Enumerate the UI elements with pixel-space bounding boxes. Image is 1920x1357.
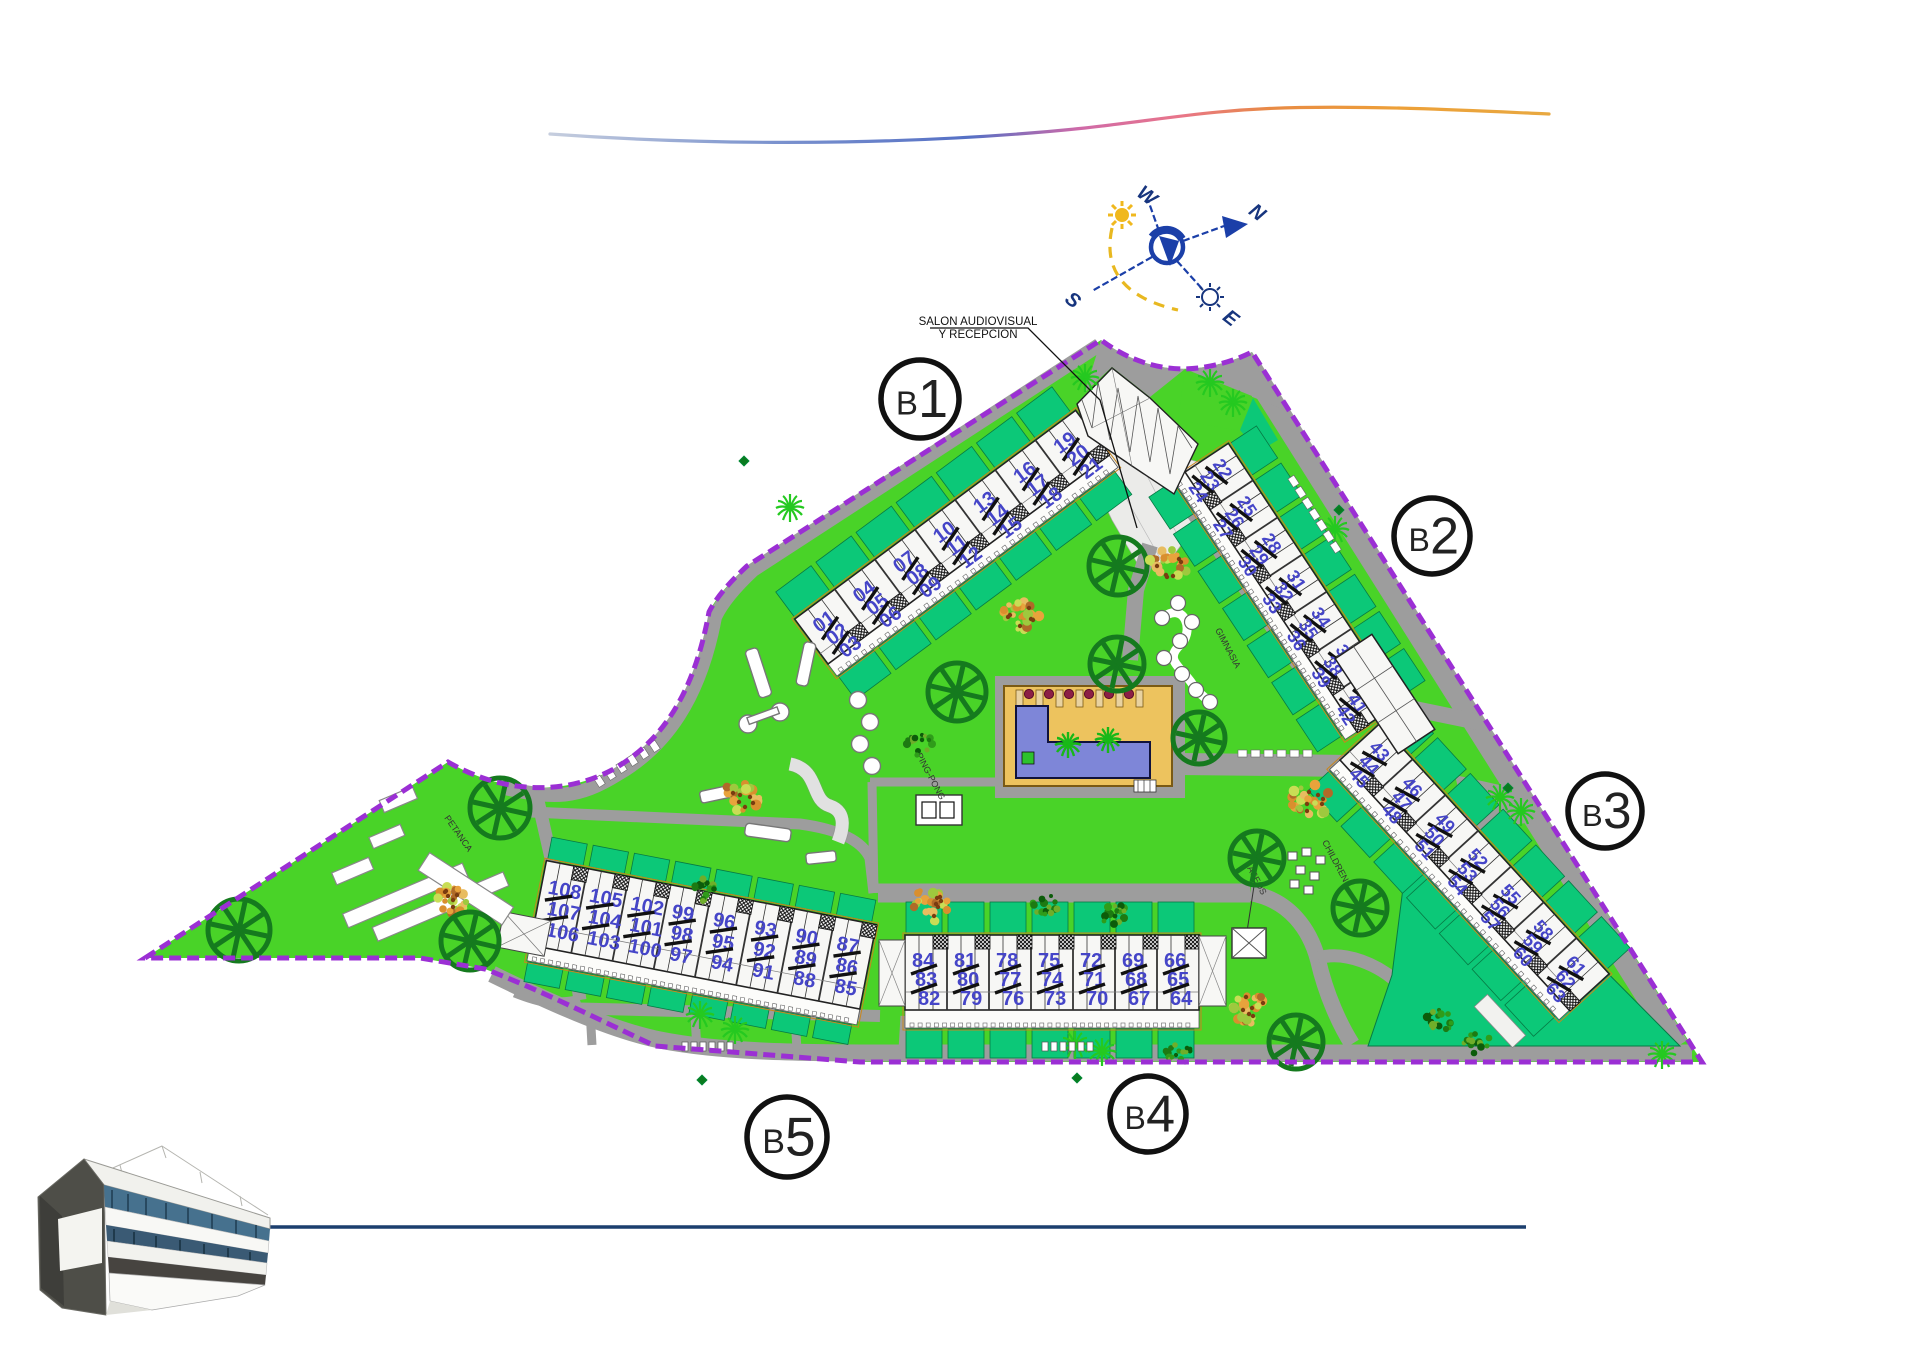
svg-text:3: 3 [1603,782,1631,839]
svg-text:97: 97 [668,943,694,969]
svg-text:B: B [762,1123,785,1161]
svg-text:91: 91 [750,959,776,985]
svg-text:67: 67 [1128,988,1150,1010]
svg-text:B: B [1408,522,1429,558]
svg-text:70: 70 [1086,988,1108,1010]
svg-text:1: 1 [918,369,948,429]
svg-text:82: 82 [918,988,940,1010]
svg-text:B: B [1124,1100,1145,1136]
svg-text:64: 64 [1170,988,1193,1010]
svg-text:SALON AUDIOVISUAL: SALON AUDIOVISUAL [919,316,1038,328]
svg-text:79: 79 [960,988,982,1010]
svg-text:88: 88 [791,967,817,993]
svg-text:73: 73 [1044,988,1066,1010]
svg-text:5: 5 [785,1105,816,1167]
svg-text:4: 4 [1146,1085,1175,1143]
svg-text:Y RECEPCION: Y RECEPCION [938,329,1017,341]
svg-text:B: B [1582,798,1603,833]
svg-text:2: 2 [1430,507,1459,565]
svg-text:76: 76 [1002,988,1024,1010]
svg-text:85: 85 [833,975,859,1001]
svg-text:B: B [896,385,918,422]
